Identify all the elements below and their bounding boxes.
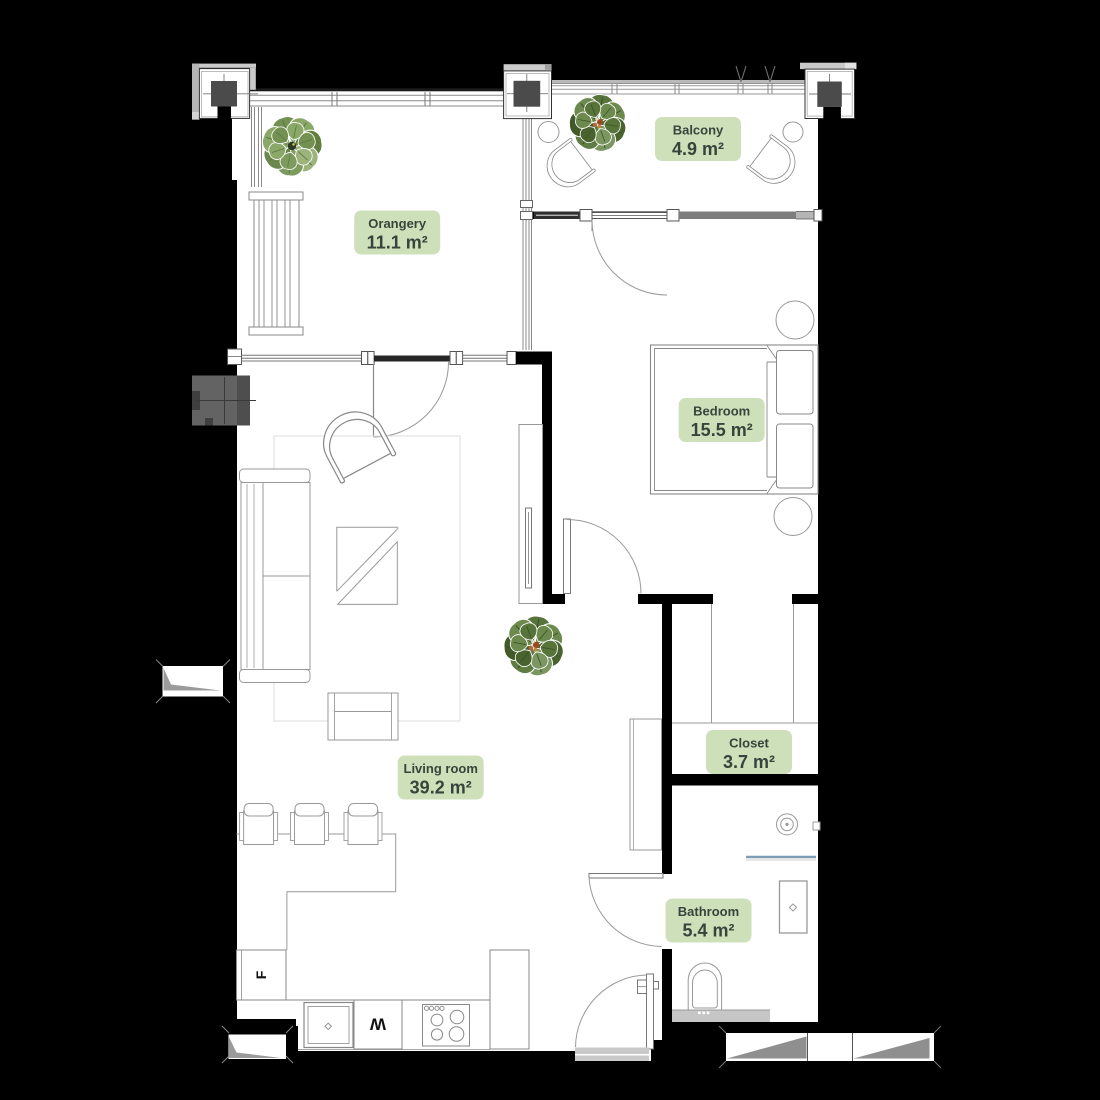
svg-text:Closet: Closet — [729, 736, 769, 751]
svg-text:Living room: Living room — [404, 761, 478, 776]
svg-text:11.1 m²: 11.1 m² — [367, 233, 428, 253]
svg-text:15.5 m²: 15.5 m² — [691, 420, 753, 440]
svg-text:39.2 m²: 39.2 m² — [410, 778, 472, 798]
svg-text:F: F — [253, 970, 269, 979]
svg-text:5.4 m²: 5.4 m² — [682, 921, 734, 941]
svg-text:W: W — [369, 1015, 386, 1034]
svg-text:4.9 m²: 4.9 m² — [672, 139, 724, 159]
svg-text:3.7 m²: 3.7 m² — [723, 752, 775, 772]
svg-text:Bathroom: Bathroom — [678, 904, 739, 919]
svg-text:Bedroom: Bedroom — [693, 404, 750, 419]
svg-text:Balcony: Balcony — [673, 123, 724, 138]
svg-text:Orangery: Orangery — [368, 216, 427, 231]
